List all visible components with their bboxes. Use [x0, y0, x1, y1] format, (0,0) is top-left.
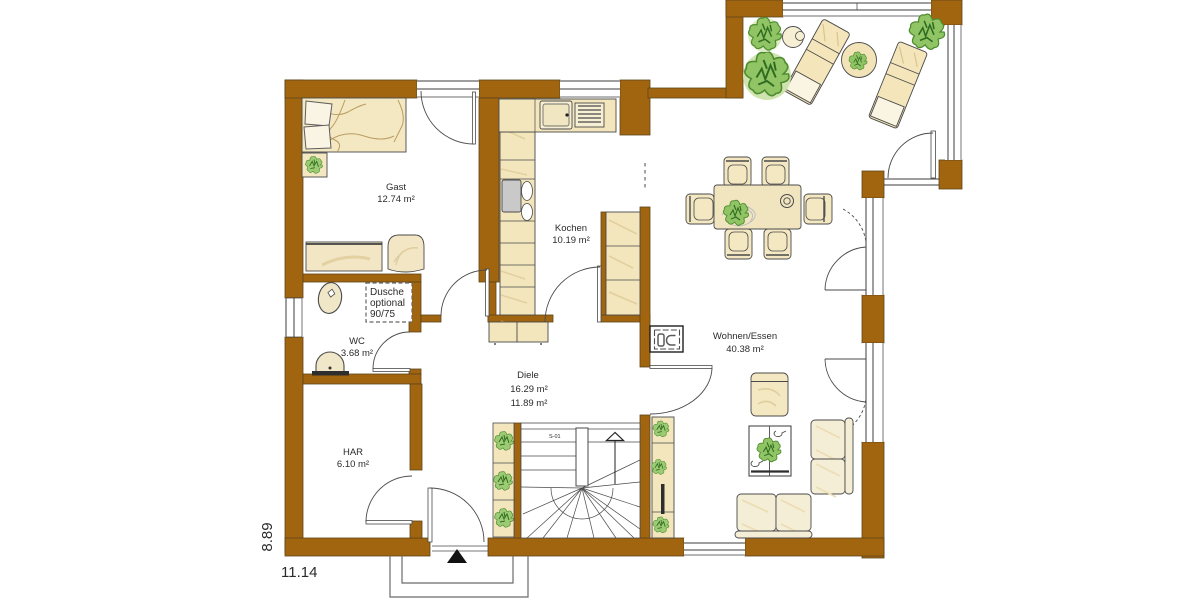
svg-text:6.10 m²: 6.10 m²: [337, 459, 369, 470]
svg-text:11.14: 11.14: [281, 564, 317, 581]
svg-text:WC: WC: [349, 336, 365, 347]
svg-text:11.89 m²: 11.89 m²: [511, 398, 548, 409]
svg-text:40.38 m²: 40.38 m²: [726, 344, 764, 355]
svg-text:S-01: S-01: [549, 434, 561, 440]
svg-text:Diele: Diele: [517, 370, 539, 381]
svg-text:16.29 m²: 16.29 m²: [510, 384, 548, 395]
svg-text:Wohnen/Essen: Wohnen/Essen: [713, 331, 777, 342]
svg-text:HAR: HAR: [343, 447, 363, 458]
svg-text:8.89: 8.89: [259, 522, 276, 551]
svg-text:3.68 m²: 3.68 m²: [341, 348, 373, 359]
svg-text:Dusche: Dusche: [370, 287, 404, 298]
svg-text:optional: optional: [370, 298, 405, 309]
svg-text:Kochen: Kochen: [555, 223, 587, 234]
svg-text:12.74 m²: 12.74 m²: [377, 194, 415, 205]
svg-text:10.19 m²: 10.19 m²: [552, 235, 590, 246]
svg-text:90/75: 90/75: [370, 309, 395, 320]
svg-text:Gast: Gast: [386, 182, 406, 193]
